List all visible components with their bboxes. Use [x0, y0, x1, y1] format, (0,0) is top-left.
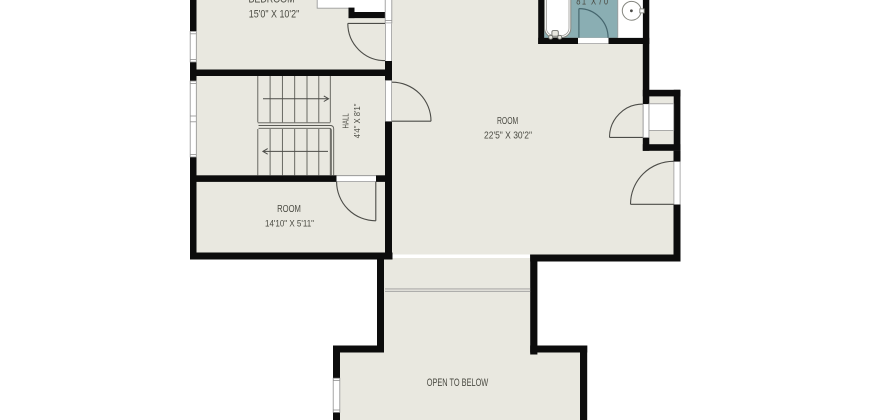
- svg-text:4'4" X 8'1": 4'4" X 8'1": [352, 103, 362, 138]
- svg-text:15'0" X 10'2": 15'0" X 10'2": [249, 9, 300, 21]
- svg-text:22'5" X 30'2": 22'5" X 30'2": [484, 130, 532, 142]
- svg-text:OPEN TO BELOW: OPEN TO BELOW: [427, 377, 489, 389]
- svg-text:14'10" X 5'11": 14'10" X 5'11": [265, 218, 314, 228]
- svg-text:8'1" X 7'0": 8'1" X 7'0": [576, 0, 611, 8]
- svg-text:ROOM: ROOM: [497, 115, 518, 127]
- svg-text:ROOM: ROOM: [277, 204, 301, 215]
- svg-text:BEDROOM: BEDROOM: [249, 0, 295, 5]
- svg-text:HALL: HALL: [340, 113, 350, 128]
